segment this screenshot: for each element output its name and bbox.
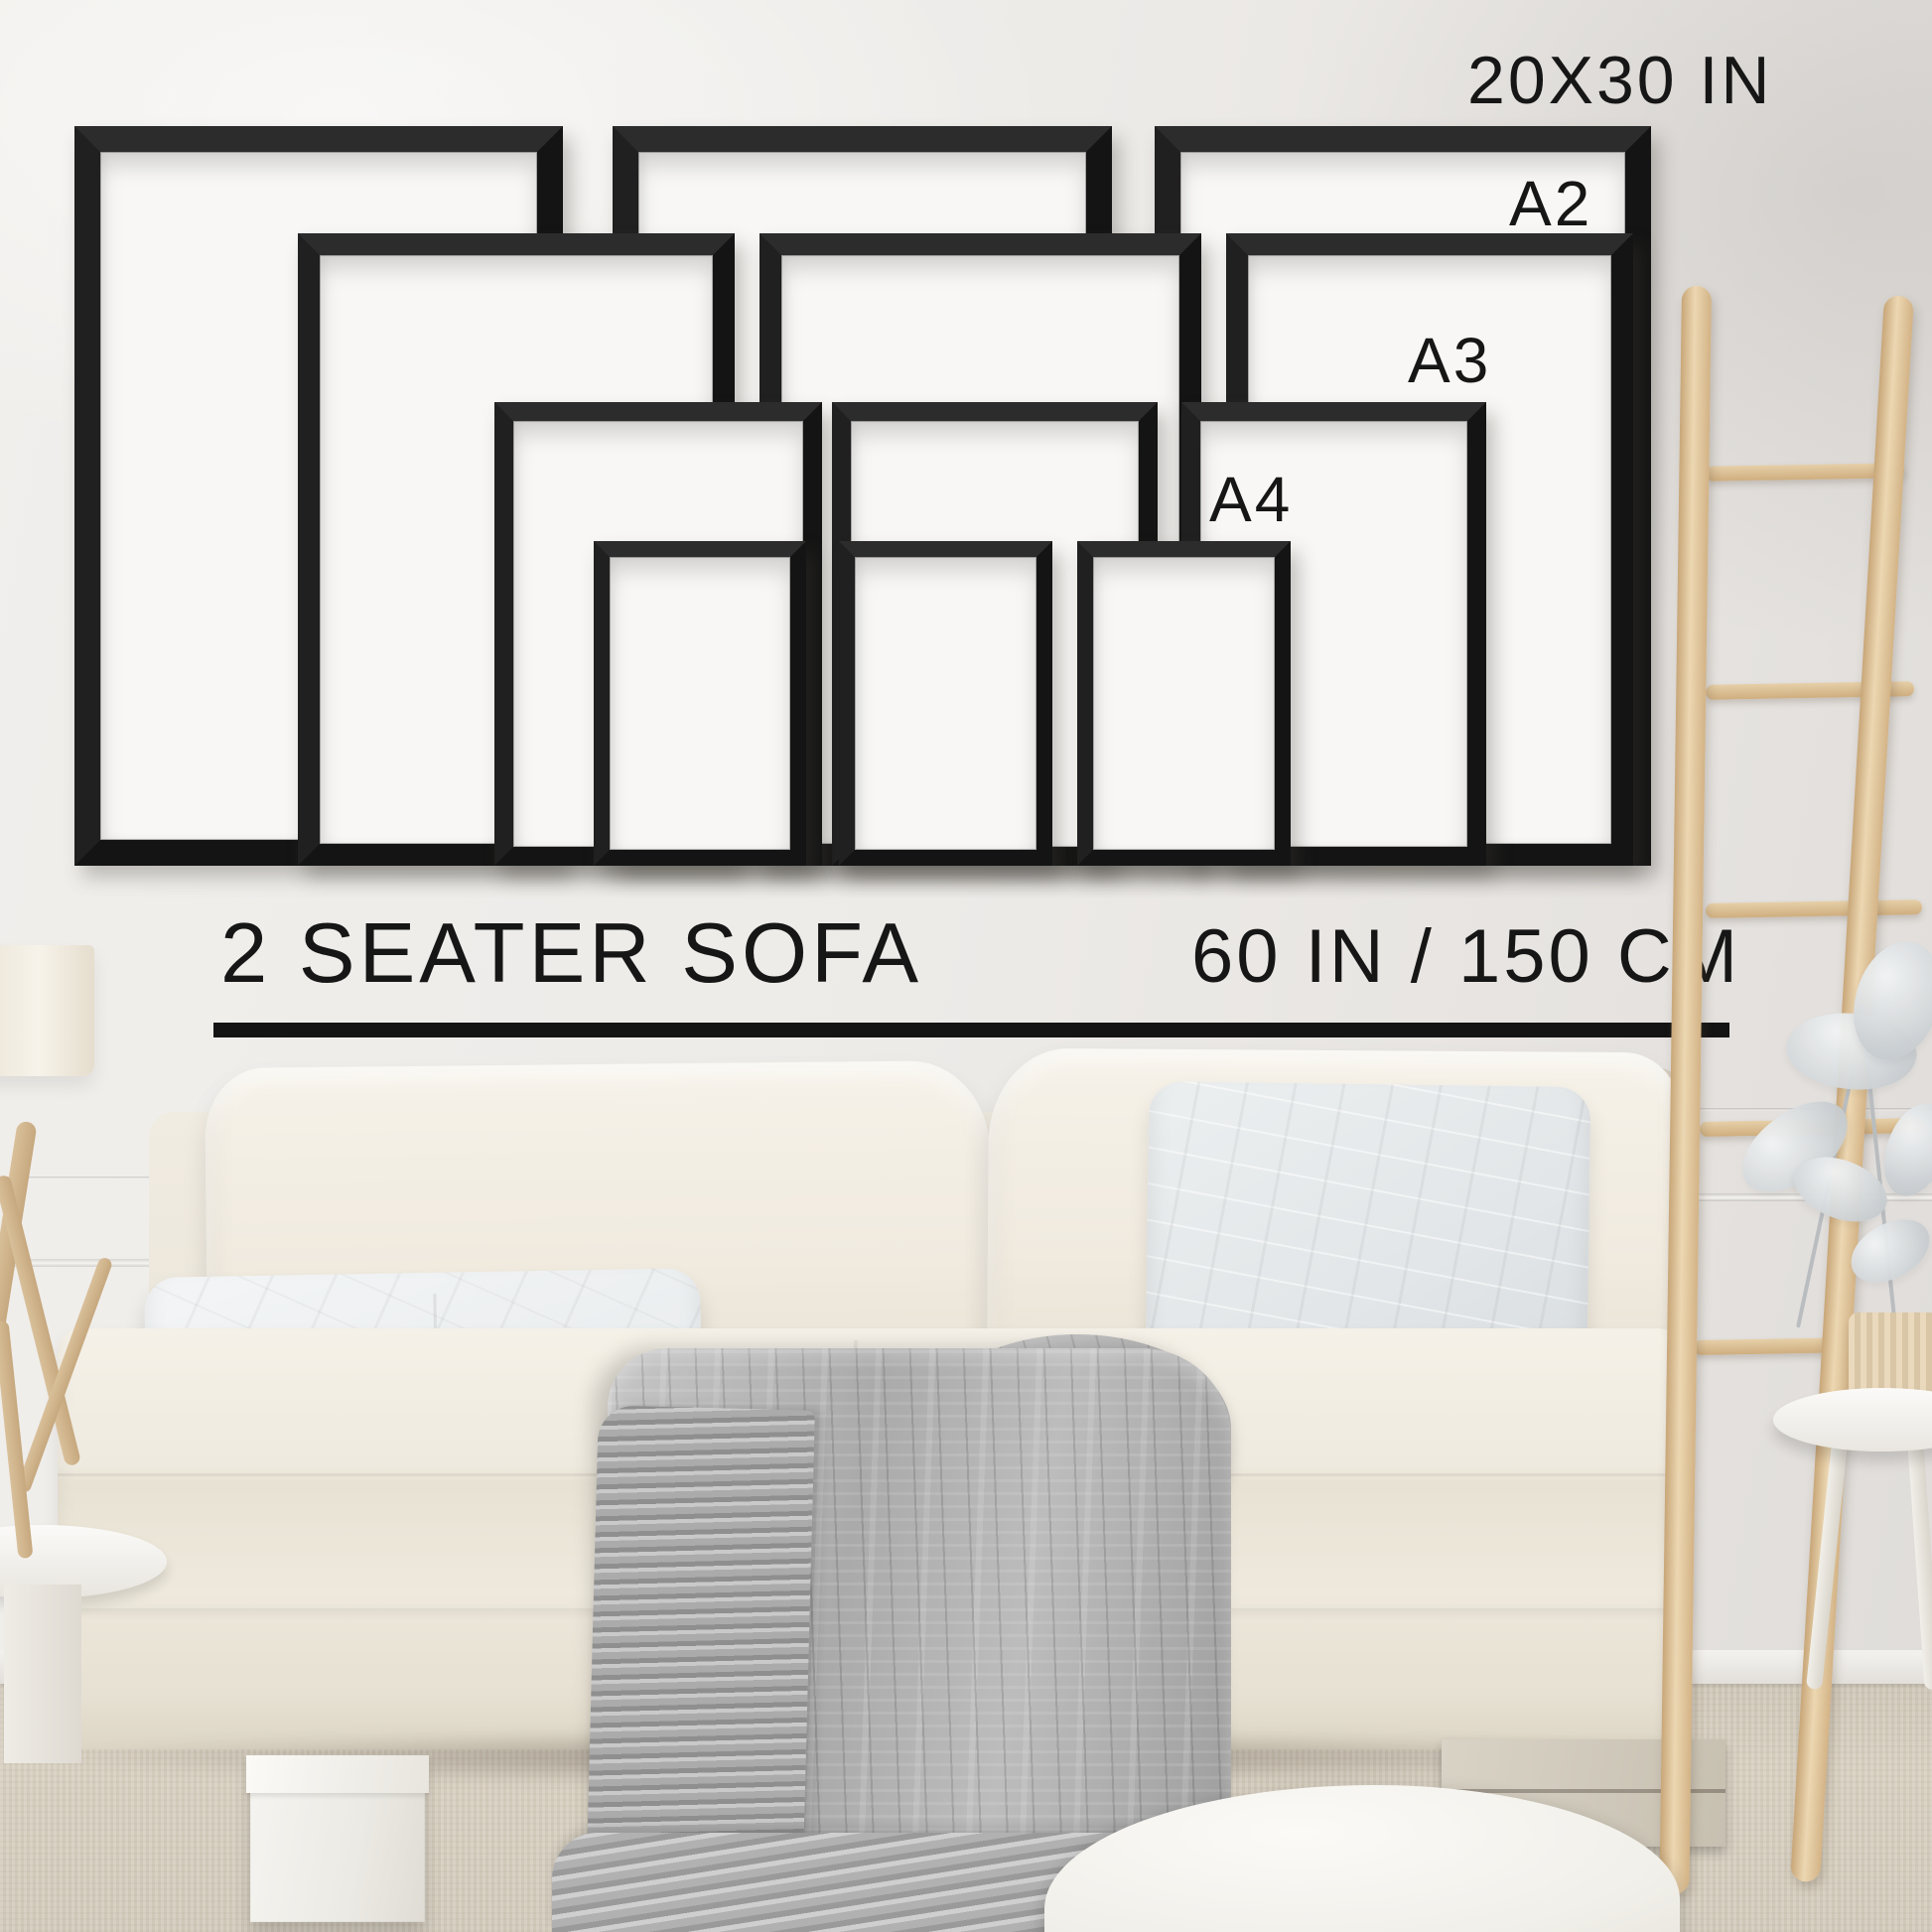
label-a2: A2: [1509, 167, 1592, 240]
label-a4: A4: [1209, 463, 1293, 536]
baseboard-right: [1668, 1650, 1932, 1684]
label-20x30: 20X30 IN: [1467, 42, 1773, 119]
frame-a4-left: [594, 541, 806, 866]
side-table-left-base: [4, 1585, 81, 1763]
label-sofa-width: 60 IN / 150 CM: [1191, 913, 1740, 1000]
measure-line: [213, 1023, 1729, 1037]
white-gift-box: [250, 1755, 425, 1922]
label-sofa: 2 SEATER SOFA: [220, 905, 922, 1003]
size-guide-image: 20X30 IN A2 A3 A4 2 SEATER SOFA 60 IN / …: [0, 0, 1932, 1932]
frame-a4-middle: [839, 541, 1052, 866]
table-lamp: [0, 945, 94, 1076]
label-a3: A3: [1408, 324, 1491, 397]
frame-a4-right: [1077, 541, 1291, 866]
